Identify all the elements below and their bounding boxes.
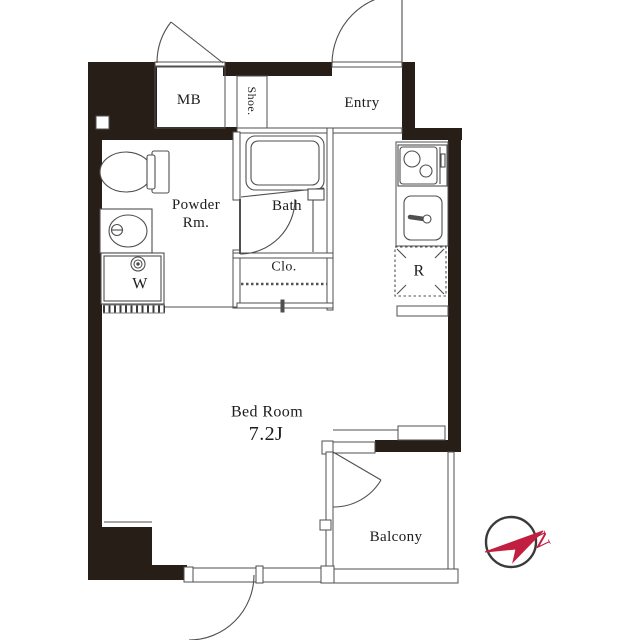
- kitchen-sink: [404, 196, 442, 240]
- balcony-door: [333, 452, 381, 507]
- window-mullion: [256, 566, 263, 583]
- accordion-partition: [103, 305, 165, 313]
- bedroom-se-step: [398, 426, 445, 440]
- label-bedroom-size: 7.2J: [249, 422, 283, 446]
- label-closet: Clo.: [271, 260, 296, 277]
- compass: N: [485, 517, 556, 567]
- closet-front-edge: [237, 303, 333, 308]
- window-corner-post: [321, 566, 334, 583]
- label-refrigerator: R: [413, 261, 424, 280]
- wall-pipe-notch: [96, 116, 109, 129]
- entry-step-edge: [237, 128, 402, 133]
- balcony-door-threshold: [333, 442, 375, 453]
- mb-door: [157, 22, 223, 63]
- kitchen-step: [397, 306, 448, 316]
- entry-door: [332, 0, 402, 64]
- balcony-south-rail: [334, 569, 458, 583]
- label-entry: Entry: [344, 94, 379, 112]
- vanity-sink: [100, 209, 152, 253]
- floorplan: N MB Shoe. Entry Powder Rm. Bath Clo. W …: [0, 0, 640, 640]
- kitchen-stove: [398, 145, 447, 186]
- balcony-east-rail: [448, 452, 454, 570]
- floorplan-drawing: N: [0, 0, 640, 640]
- label-washer: W: [132, 274, 148, 293]
- closet-door-tick: [281, 300, 284, 312]
- label-balcony: Balcony: [370, 528, 423, 546]
- powder-closet-wall: [233, 250, 240, 308]
- label-mb: MB: [177, 91, 201, 109]
- toilet: [100, 151, 169, 193]
- label-powder-room: Powder Rm.: [159, 196, 233, 232]
- entry-door-threshold: [332, 62, 402, 67]
- balcony-west-rail: [326, 452, 333, 570]
- label-shoe: Shoe.: [245, 87, 259, 116]
- powder-bath-wall-upper: [233, 132, 240, 200]
- label-bedroom-name: Bed Room: [231, 402, 303, 421]
- bath-east-wall: [327, 128, 333, 310]
- label-bath: Bath: [272, 197, 302, 215]
- bedroom-window-door: [189, 575, 254, 640]
- balcony-rail-joint: [320, 520, 331, 530]
- window-door-hinge-post: [184, 567, 193, 582]
